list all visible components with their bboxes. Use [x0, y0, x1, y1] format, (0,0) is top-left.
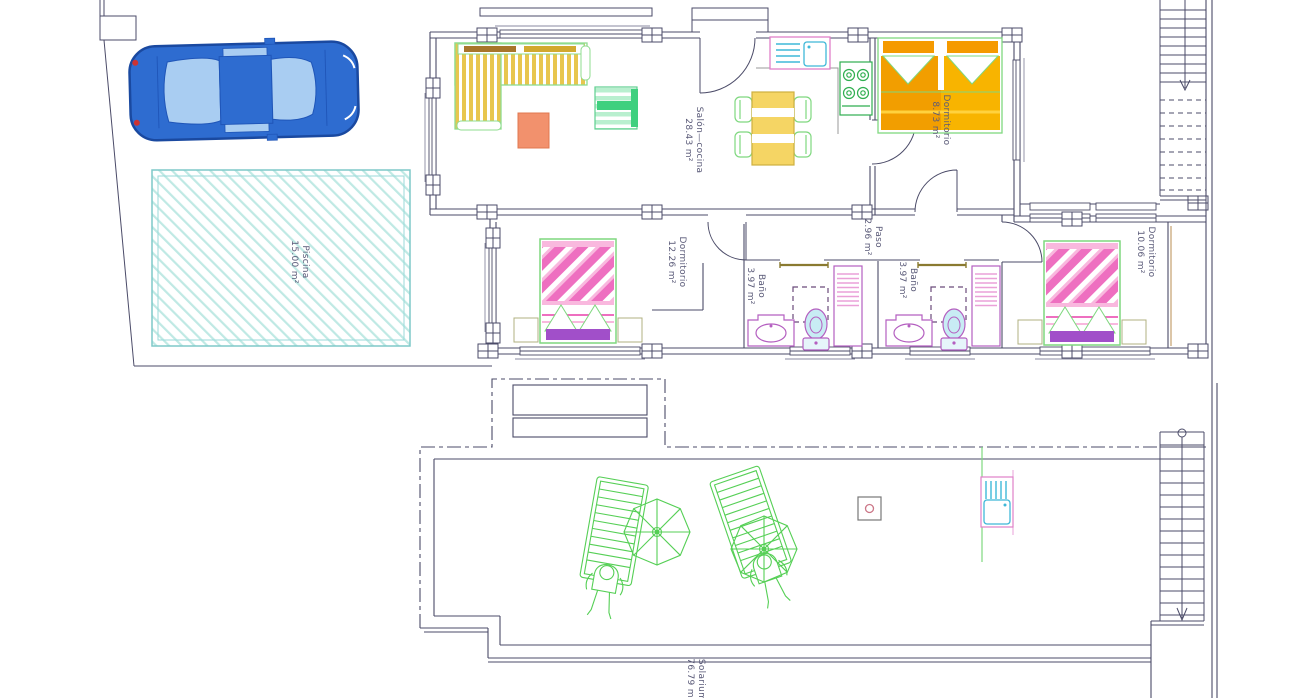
solarium-furniture: [573, 466, 803, 622]
room-name: Solarium: [696, 659, 706, 698]
room-name: Dormitorio: [941, 95, 951, 146]
solarium-outline: [420, 379, 1206, 698]
room-area: 3.97 m²: [745, 267, 755, 304]
room-label-salon: Salón—cocina 28.43 m²: [683, 107, 705, 174]
room-name: Baño: [908, 268, 918, 292]
swimming-pool: [152, 170, 410, 346]
room-name: Baño: [756, 274, 766, 298]
room-label-piscina: Piscina 15.00 m²: [289, 240, 310, 283]
room-label-bano-1: Baño 3.97 m²: [745, 267, 766, 304]
room-area: 15.00 m²: [289, 240, 299, 283]
room-name: Paso: [873, 226, 883, 248]
room-label-dormitorio-2: Dormitorio 12.26 m²: [666, 237, 687, 288]
room-label-dormitorio-1: Dormitorio 8.73 m²: [930, 95, 951, 146]
stove: [840, 62, 872, 115]
room-area: 8.73 m²: [930, 101, 940, 138]
parasol-1: [624, 499, 690, 565]
car: [129, 36, 360, 144]
entrance-porch: [480, 8, 768, 32]
room-area: 2.96 m²: [862, 218, 872, 255]
coffee-table: [518, 113, 549, 148]
kitchen-sink: [770, 37, 830, 69]
armchair: [595, 87, 638, 129]
room-area: 76.79 m²: [685, 658, 695, 698]
room-name: Salón—cocina: [694, 107, 705, 174]
room-name: Piscina: [300, 245, 310, 278]
stairs-upper: [1160, 0, 1206, 222]
room-label-bano-2: Baño 3.97 m²: [897, 261, 918, 298]
room-area: 12.26 m²: [666, 240, 676, 283]
room-area: 28.43 m²: [683, 118, 693, 161]
bed-pink-left: [514, 239, 642, 343]
room-area: 3.97 m²: [897, 261, 907, 298]
bed-pink-right: [1018, 241, 1146, 345]
room-name: Dormitorio: [1146, 227, 1156, 278]
room-name: Dormitorio: [677, 237, 687, 288]
parasol-2: [731, 516, 797, 582]
room-area: 10.06 m²: [1135, 230, 1145, 273]
room-label-paso: Paso 2.96 m²: [862, 218, 883, 255]
solarium-sink: [981, 447, 1013, 562]
dining-set: [735, 92, 811, 165]
stairs-lower: [1151, 429, 1204, 625]
floor-plan-canvas: Salón—cocina 28.43 m² Dormitorio 8.73 m²…: [0, 0, 1290, 698]
room-label-solarium: Solarium 76.79 m²: [685, 658, 706, 698]
room-label-dormitorio-3: Dormitorio 10.06 m²: [1135, 227, 1156, 278]
solarium-drain: [858, 497, 881, 520]
